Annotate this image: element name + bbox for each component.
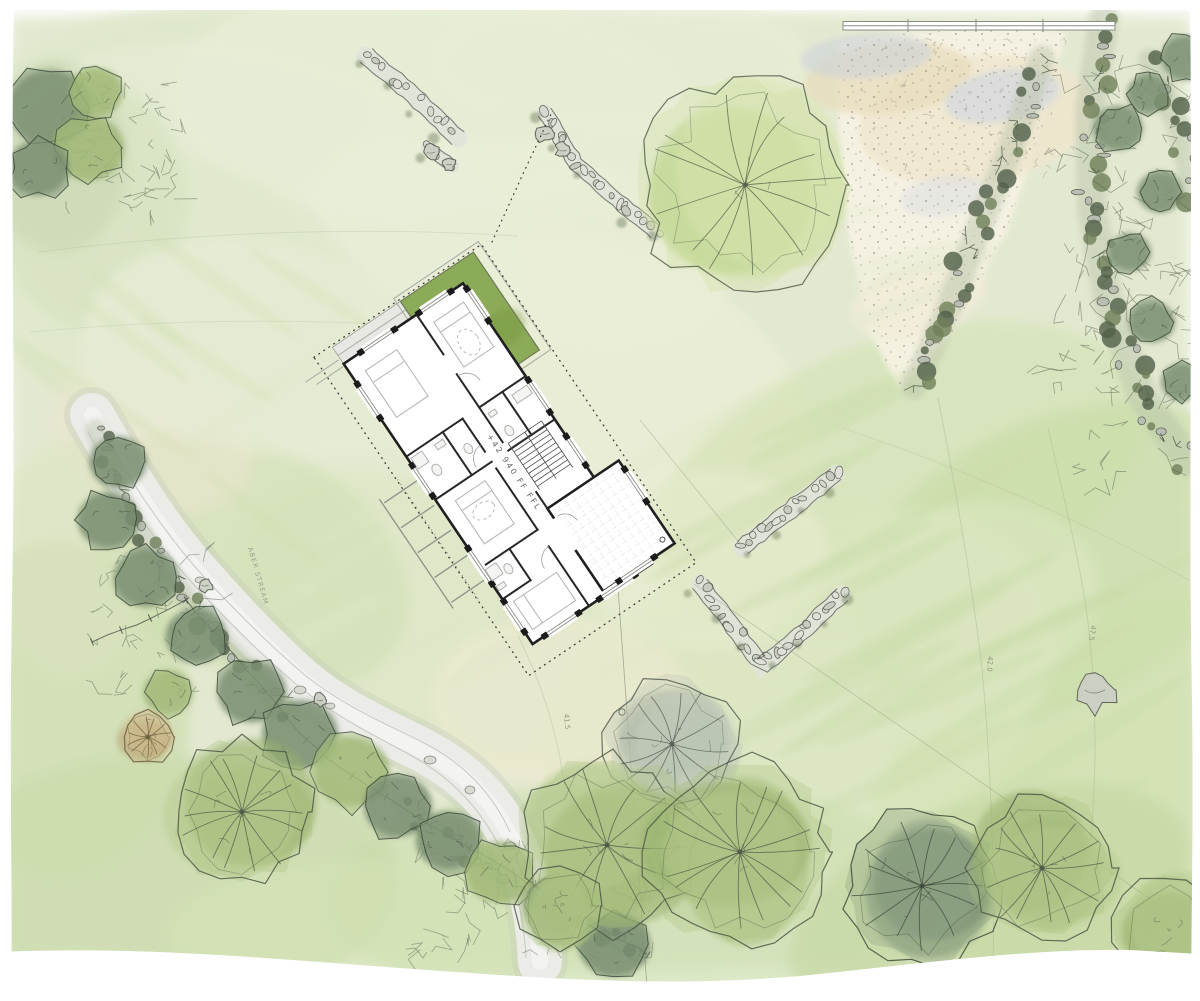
band-fern	[965, 226, 966, 236]
scribble-stroke	[1070, 147, 1074, 148]
band-bush	[1098, 30, 1112, 44]
band-stone	[1133, 345, 1140, 353]
band-stone	[1138, 417, 1146, 425]
band-bush	[1095, 57, 1110, 72]
band-bush	[1099, 75, 1117, 93]
band-stone	[1031, 104, 1041, 109]
band-stone	[1080, 134, 1088, 141]
wall-tuft	[684, 590, 692, 598]
wall-tuft	[416, 153, 426, 163]
site-plan-page: +42 940 FF FFL 47.5 42.0 41.5 ABER STREA…	[0, 0, 1200, 1001]
band-bush	[1013, 147, 1023, 157]
contour-label: 41.5	[562, 713, 571, 729]
tree-trunk	[920, 884, 925, 889]
wall-stone	[710, 605, 720, 611]
band-fern	[1002, 146, 1003, 156]
stream-rock	[465, 786, 475, 794]
band-stone	[1033, 82, 1040, 90]
band-stone	[1085, 197, 1092, 205]
band-bush	[192, 593, 204, 605]
band-bush	[1168, 147, 1179, 158]
tree-trunk	[670, 742, 675, 747]
band-bush	[1013, 123, 1031, 141]
stream-rock	[325, 703, 335, 709]
band-bush	[1147, 422, 1155, 430]
band-bush	[979, 184, 993, 198]
tree-trunk	[240, 810, 245, 815]
band-stone	[138, 521, 146, 531]
band-bush	[1142, 398, 1154, 410]
band-bush	[985, 198, 997, 210]
band-stone	[1097, 297, 1109, 306]
contour-label: 42.0	[985, 656, 994, 672]
band-bush	[997, 182, 1009, 194]
band-bush	[1092, 173, 1111, 192]
stream-rock	[424, 756, 436, 764]
band-bush	[1016, 87, 1026, 97]
band-stone	[954, 301, 964, 307]
site-plan-canvas: +42 940 FF FFL 47.5 42.0 41.5 ABER STREA…	[0, 0, 1200, 1001]
band-bush	[976, 215, 990, 229]
band-bush	[132, 534, 144, 546]
band-stone	[1071, 189, 1084, 194]
band-bush	[1022, 67, 1036, 81]
band-bush	[981, 227, 995, 241]
wall-tuft	[548, 144, 556, 152]
band-bush	[922, 376, 936, 390]
wall-stone	[363, 51, 372, 58]
band-bush	[150, 537, 162, 549]
stream-rock	[294, 686, 306, 694]
band-stone	[1185, 178, 1192, 184]
paper-edge-top	[0, 0, 1200, 10]
wall-tuft	[842, 594, 853, 605]
wall-stone	[609, 192, 615, 199]
band-bush	[1102, 328, 1122, 348]
band-stone	[1097, 43, 1108, 49]
wall-tuft	[616, 217, 627, 228]
band-bush	[944, 252, 963, 271]
wall-stone	[812, 612, 821, 620]
band-bush	[1142, 371, 1150, 379]
band-stone	[1108, 286, 1118, 294]
band-stone	[926, 339, 934, 345]
band-bush	[1083, 232, 1096, 245]
band-fern	[1012, 141, 1017, 142]
wall-stone	[798, 496, 807, 501]
band-stone	[953, 271, 962, 276]
band-stone	[98, 426, 105, 430]
band-stone	[1027, 114, 1039, 119]
tree-trunk	[738, 850, 743, 855]
band-stone	[1115, 361, 1122, 370]
band-bush	[921, 346, 929, 354]
wall-tuft	[405, 111, 412, 118]
wall-stone	[812, 484, 820, 492]
wall-tuft	[384, 81, 393, 90]
band-bush	[968, 200, 984, 216]
